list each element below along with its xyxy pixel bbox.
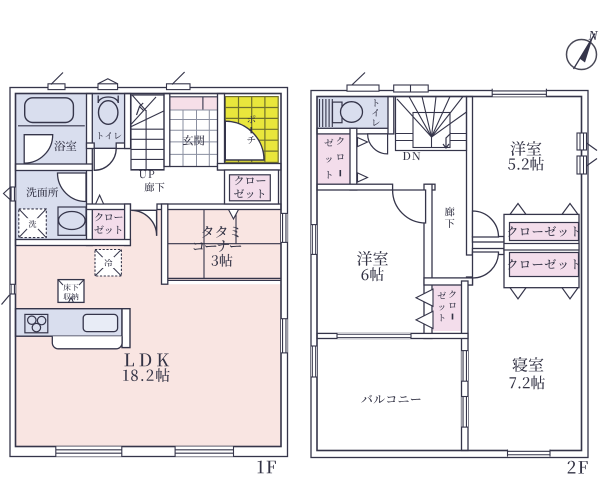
svg-text:N: N — [588, 28, 599, 43]
